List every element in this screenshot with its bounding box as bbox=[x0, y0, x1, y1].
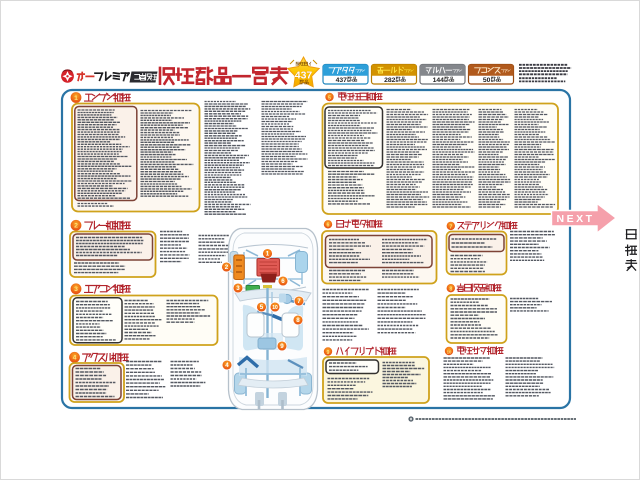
svg-text:2: 2 bbox=[74, 223, 78, 230]
svg-text:NEXT: NEXT bbox=[557, 213, 595, 225]
svg-text:9: 9 bbox=[327, 350, 330, 356]
svg-text:10: 10 bbox=[272, 305, 278, 311]
svg-text:2: 2 bbox=[225, 264, 229, 271]
svg-text:10: 10 bbox=[447, 349, 452, 354]
svg-text:282: 282 bbox=[384, 77, 396, 84]
svg-text:5: 5 bbox=[260, 304, 264, 311]
svg-text:3: 3 bbox=[74, 286, 78, 293]
svg-text:1: 1 bbox=[74, 95, 78, 102]
svg-text:8: 8 bbox=[296, 317, 300, 324]
svg-text:9: 9 bbox=[280, 343, 284, 350]
svg-text:437: 437 bbox=[295, 70, 313, 82]
svg-text:437: 437 bbox=[336, 77, 348, 84]
svg-text:7: 7 bbox=[449, 224, 452, 230]
svg-text:3: 3 bbox=[236, 285, 240, 292]
svg-text:4: 4 bbox=[225, 362, 229, 369]
svg-text:6: 6 bbox=[327, 223, 330, 229]
svg-text:4: 4 bbox=[73, 355, 77, 362]
svg-text:5: 5 bbox=[328, 95, 331, 101]
svg-text:144: 144 bbox=[433, 77, 445, 84]
svg-text:1: 1 bbox=[266, 251, 270, 258]
svg-text:50: 50 bbox=[483, 77, 491, 84]
svg-text:8: 8 bbox=[449, 287, 452, 293]
svg-text:7: 7 bbox=[297, 298, 301, 305]
svg-text:6: 6 bbox=[281, 278, 285, 285]
